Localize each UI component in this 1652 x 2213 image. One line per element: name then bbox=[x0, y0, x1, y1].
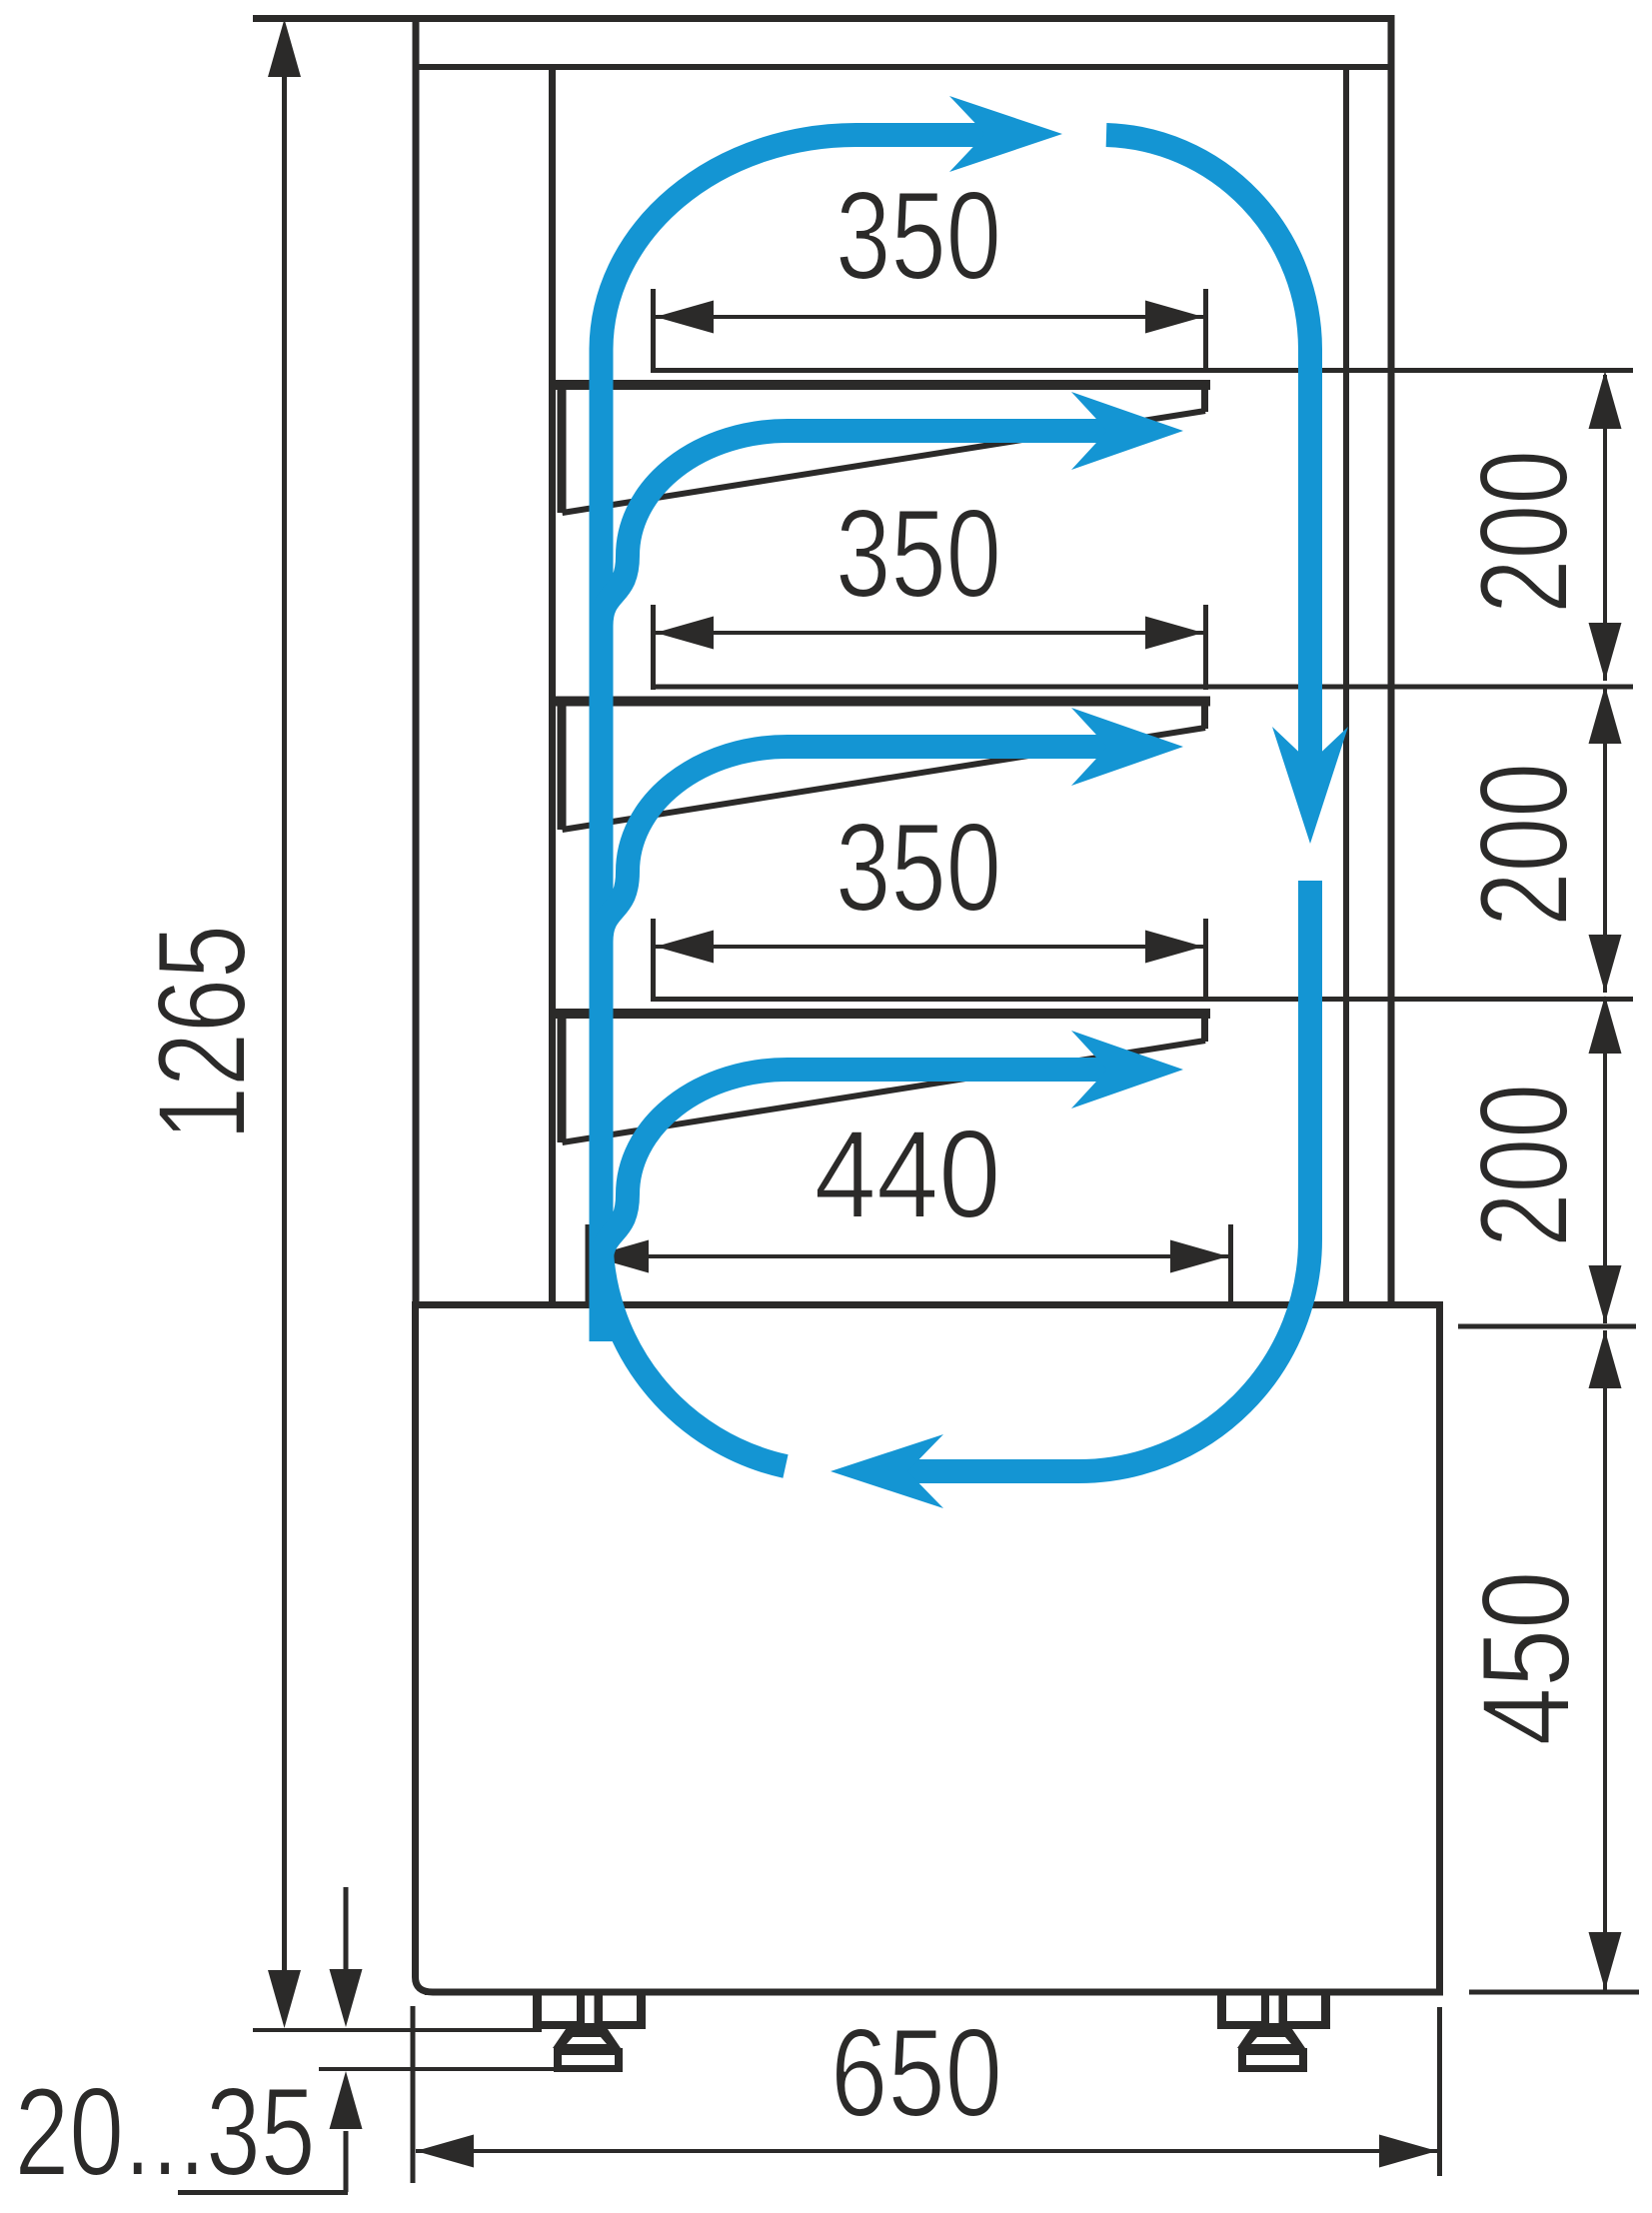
svg-text:1265: 1265 bbox=[133, 925, 272, 1140]
svg-text:350: 350 bbox=[835, 799, 1001, 938]
svg-text:350: 350 bbox=[835, 485, 1001, 624]
svg-text:350: 350 bbox=[835, 167, 1001, 306]
svg-text:20...35: 20...35 bbox=[15, 2063, 316, 2202]
svg-text:200: 200 bbox=[1455, 1084, 1594, 1247]
svg-text:440: 440 bbox=[815, 1106, 1001, 1244]
svg-text:200: 200 bbox=[1455, 450, 1594, 614]
svg-text:650: 650 bbox=[830, 2004, 1002, 2143]
svg-text:450: 450 bbox=[1457, 1571, 1596, 1746]
svg-text:200: 200 bbox=[1455, 763, 1594, 927]
